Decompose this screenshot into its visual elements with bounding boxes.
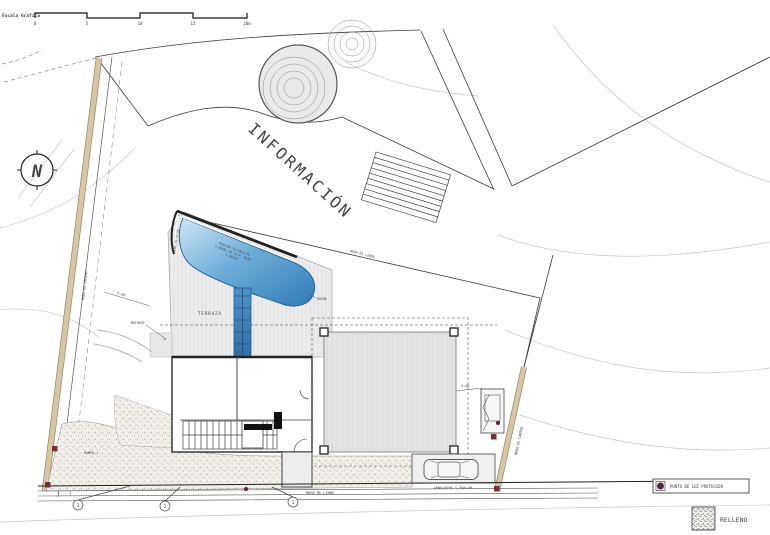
entry-extension <box>282 452 312 487</box>
dimension-left: 5.00 <box>104 291 150 306</box>
garden-paths <box>94 330 152 362</box>
car-symbol <box>424 460 478 480</box>
legend-light-label: PUNTO DE LUZ PROTEGIDO <box>670 484 724 489</box>
scale-bar-title: Escala Gráfica <box>2 12 40 19</box>
wall-block <box>274 412 282 429</box>
scale-tick-10: 10 <box>137 21 143 26</box>
parking-area <box>412 454 495 483</box>
legend: PUNTO DE LUZ PROTEGIDO RELLENO <box>653 479 749 530</box>
muro-linde-bottom-label: MURO DE LINDE <box>306 491 334 495</box>
north-compass: N <box>17 150 57 190</box>
aparcadero-label: APARCADERO 5.35x6.00 <box>434 486 472 490</box>
dimension-right: 5.00 <box>456 384 482 391</box>
scale-tick-0: 0 <box>34 21 37 26</box>
light-point-icon <box>658 483 664 489</box>
site-plan-sheet: Escala Gráfica 0 5 10 15 20m N <box>0 0 770 535</box>
informacion-label: INFORMACIÓN <box>244 119 356 222</box>
north-letter: N <box>31 162 43 182</box>
scale-tick-20: 20m <box>243 21 251 26</box>
terraza-label: TERRAZA <box>198 311 222 316</box>
counter-block <box>244 424 272 430</box>
scale-tick-5: 5 <box>86 21 89 26</box>
rampa-label: RAMPA 1 <box>84 451 98 455</box>
marker-1: 1 <box>292 500 295 506</box>
relleno-swatch <box>692 507 715 530</box>
stepped-path-hatch <box>361 152 450 223</box>
site-plan-drawing: Escala Gráfica 0 5 10 15 20m N <box>0 0 770 535</box>
muro-camino-left-label: MURO DE CAMINO <box>81 271 88 300</box>
marker-2: 2 <box>164 504 167 510</box>
dashed-road-edges <box>2 50 96 82</box>
gate-structure <box>481 389 504 433</box>
tree-symbol-large <box>259 45 337 123</box>
legend-relleno-label: RELLENO <box>720 516 747 524</box>
tree-symbol-small <box>328 20 376 68</box>
porch-slab <box>312 318 468 466</box>
dim-right-label: 5.00 <box>461 384 469 388</box>
ducha-label: DUCHA <box>317 297 327 301</box>
muro-camino-right-label: MURO DE CAMINO <box>514 426 524 455</box>
marker-3: 3 <box>77 503 80 509</box>
scale-tick-15: 15 <box>190 21 196 26</box>
scale-bar: Escala Gráfica 0 5 10 15 20m <box>2 12 251 26</box>
motores-label: MOTORES <box>131 321 145 325</box>
